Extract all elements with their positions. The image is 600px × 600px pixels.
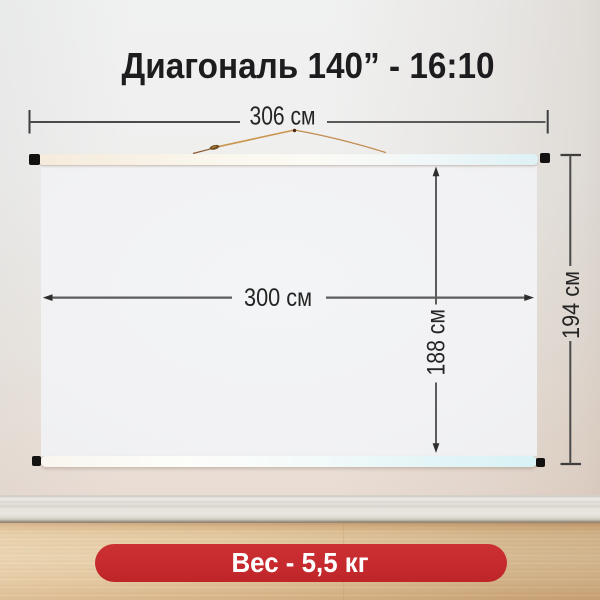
svg-text:Вес - 5,5 кг: Вес - 5,5 кг [232,547,369,578]
svg-text:194 см: 194 см [558,271,585,339]
svg-text:300 см: 300 см [244,284,312,312]
svg-text:188 см: 188 см [423,309,451,376]
